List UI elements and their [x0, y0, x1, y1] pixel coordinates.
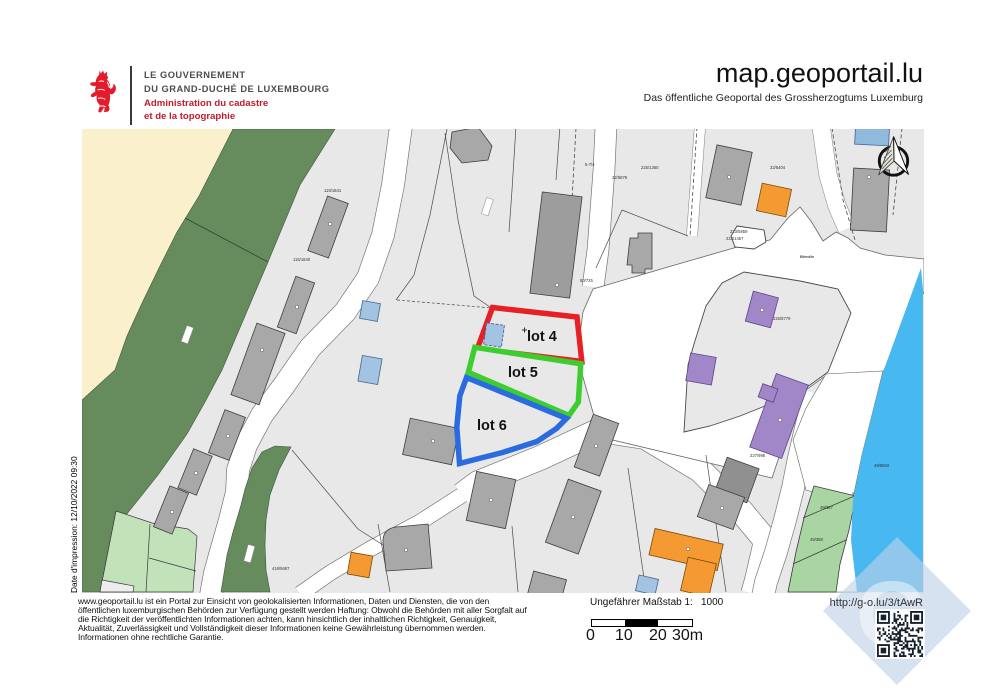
- svg-text:115/1840: 115/1840: [293, 257, 311, 262]
- svg-text:49/5683: 49/5683: [874, 463, 890, 468]
- svg-text:223/5859: 223/5859: [730, 229, 748, 234]
- svg-text:49/387: 49/387: [820, 505, 833, 510]
- svg-text:22/5879: 22/5879: [612, 175, 628, 180]
- svg-text:419/5687: 419/5687: [272, 566, 290, 571]
- svg-text:49/388: 49/388: [810, 537, 823, 542]
- svg-text:223/1457: 223/1457: [726, 236, 744, 241]
- svg-text:119/1841: 119/1841: [324, 188, 342, 193]
- svg-text:225/8779: 225/8779: [773, 316, 791, 321]
- svg-text:225/1360: 225/1360: [641, 165, 659, 170]
- svg-text:lot 6: lot 6: [477, 418, 507, 434]
- svg-text:lot 4: lot 4: [527, 329, 557, 345]
- svg-text:50/725: 50/725: [580, 278, 593, 283]
- svg-text:227/998: 227/998: [750, 453, 766, 458]
- svg-text:Bëmële: Bëmële: [800, 254, 815, 259]
- svg-text:22/5404: 22/5404: [770, 165, 786, 170]
- svg-text:5-7/4: 5-7/4: [585, 162, 595, 167]
- svg-text:lot 5: lot 5: [508, 365, 538, 381]
